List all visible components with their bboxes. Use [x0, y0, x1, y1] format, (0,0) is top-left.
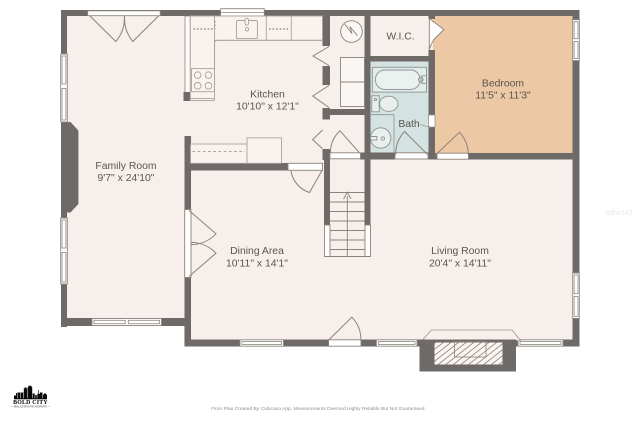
svg-text:Family Room: Family Room	[95, 161, 156, 172]
svg-text:10'10" x 12'1": 10'10" x 12'1"	[236, 101, 299, 112]
svg-text:Bedroom: Bedroom	[482, 79, 524, 90]
svg-text:W.I.C.: W.I.C.	[386, 31, 414, 42]
svg-text:Dining Area: Dining Area	[230, 246, 284, 257]
svg-text:Floor Plan Created By Cubicasa: Floor Plan Created By Cubicasa App. Meas…	[211, 406, 426, 412]
svg-text:20'4" x 14'11": 20'4" x 14'11"	[429, 259, 491, 270]
svg-text:— REAL ESTATE PHOTOGRAPHY —: — REAL ESTATE PHOTOGRAPHY —	[11, 405, 51, 408]
svg-text:9'7" x 24'10": 9'7" x 24'10"	[98, 173, 155, 184]
svg-text:Kitchen: Kitchen	[250, 90, 285, 101]
svg-text:Living Room: Living Room	[431, 246, 489, 257]
svg-text:BOLD CITY: BOLD CITY	[13, 400, 48, 406]
svg-text:Bath: Bath	[398, 119, 420, 130]
svg-text:10'11" x 14'1": 10'11" x 14'1"	[226, 259, 288, 270]
svg-text:tothe143: tothe143	[605, 210, 632, 217]
svg-text:11'5" x 11'3": 11'5" x 11'3"	[475, 90, 531, 101]
